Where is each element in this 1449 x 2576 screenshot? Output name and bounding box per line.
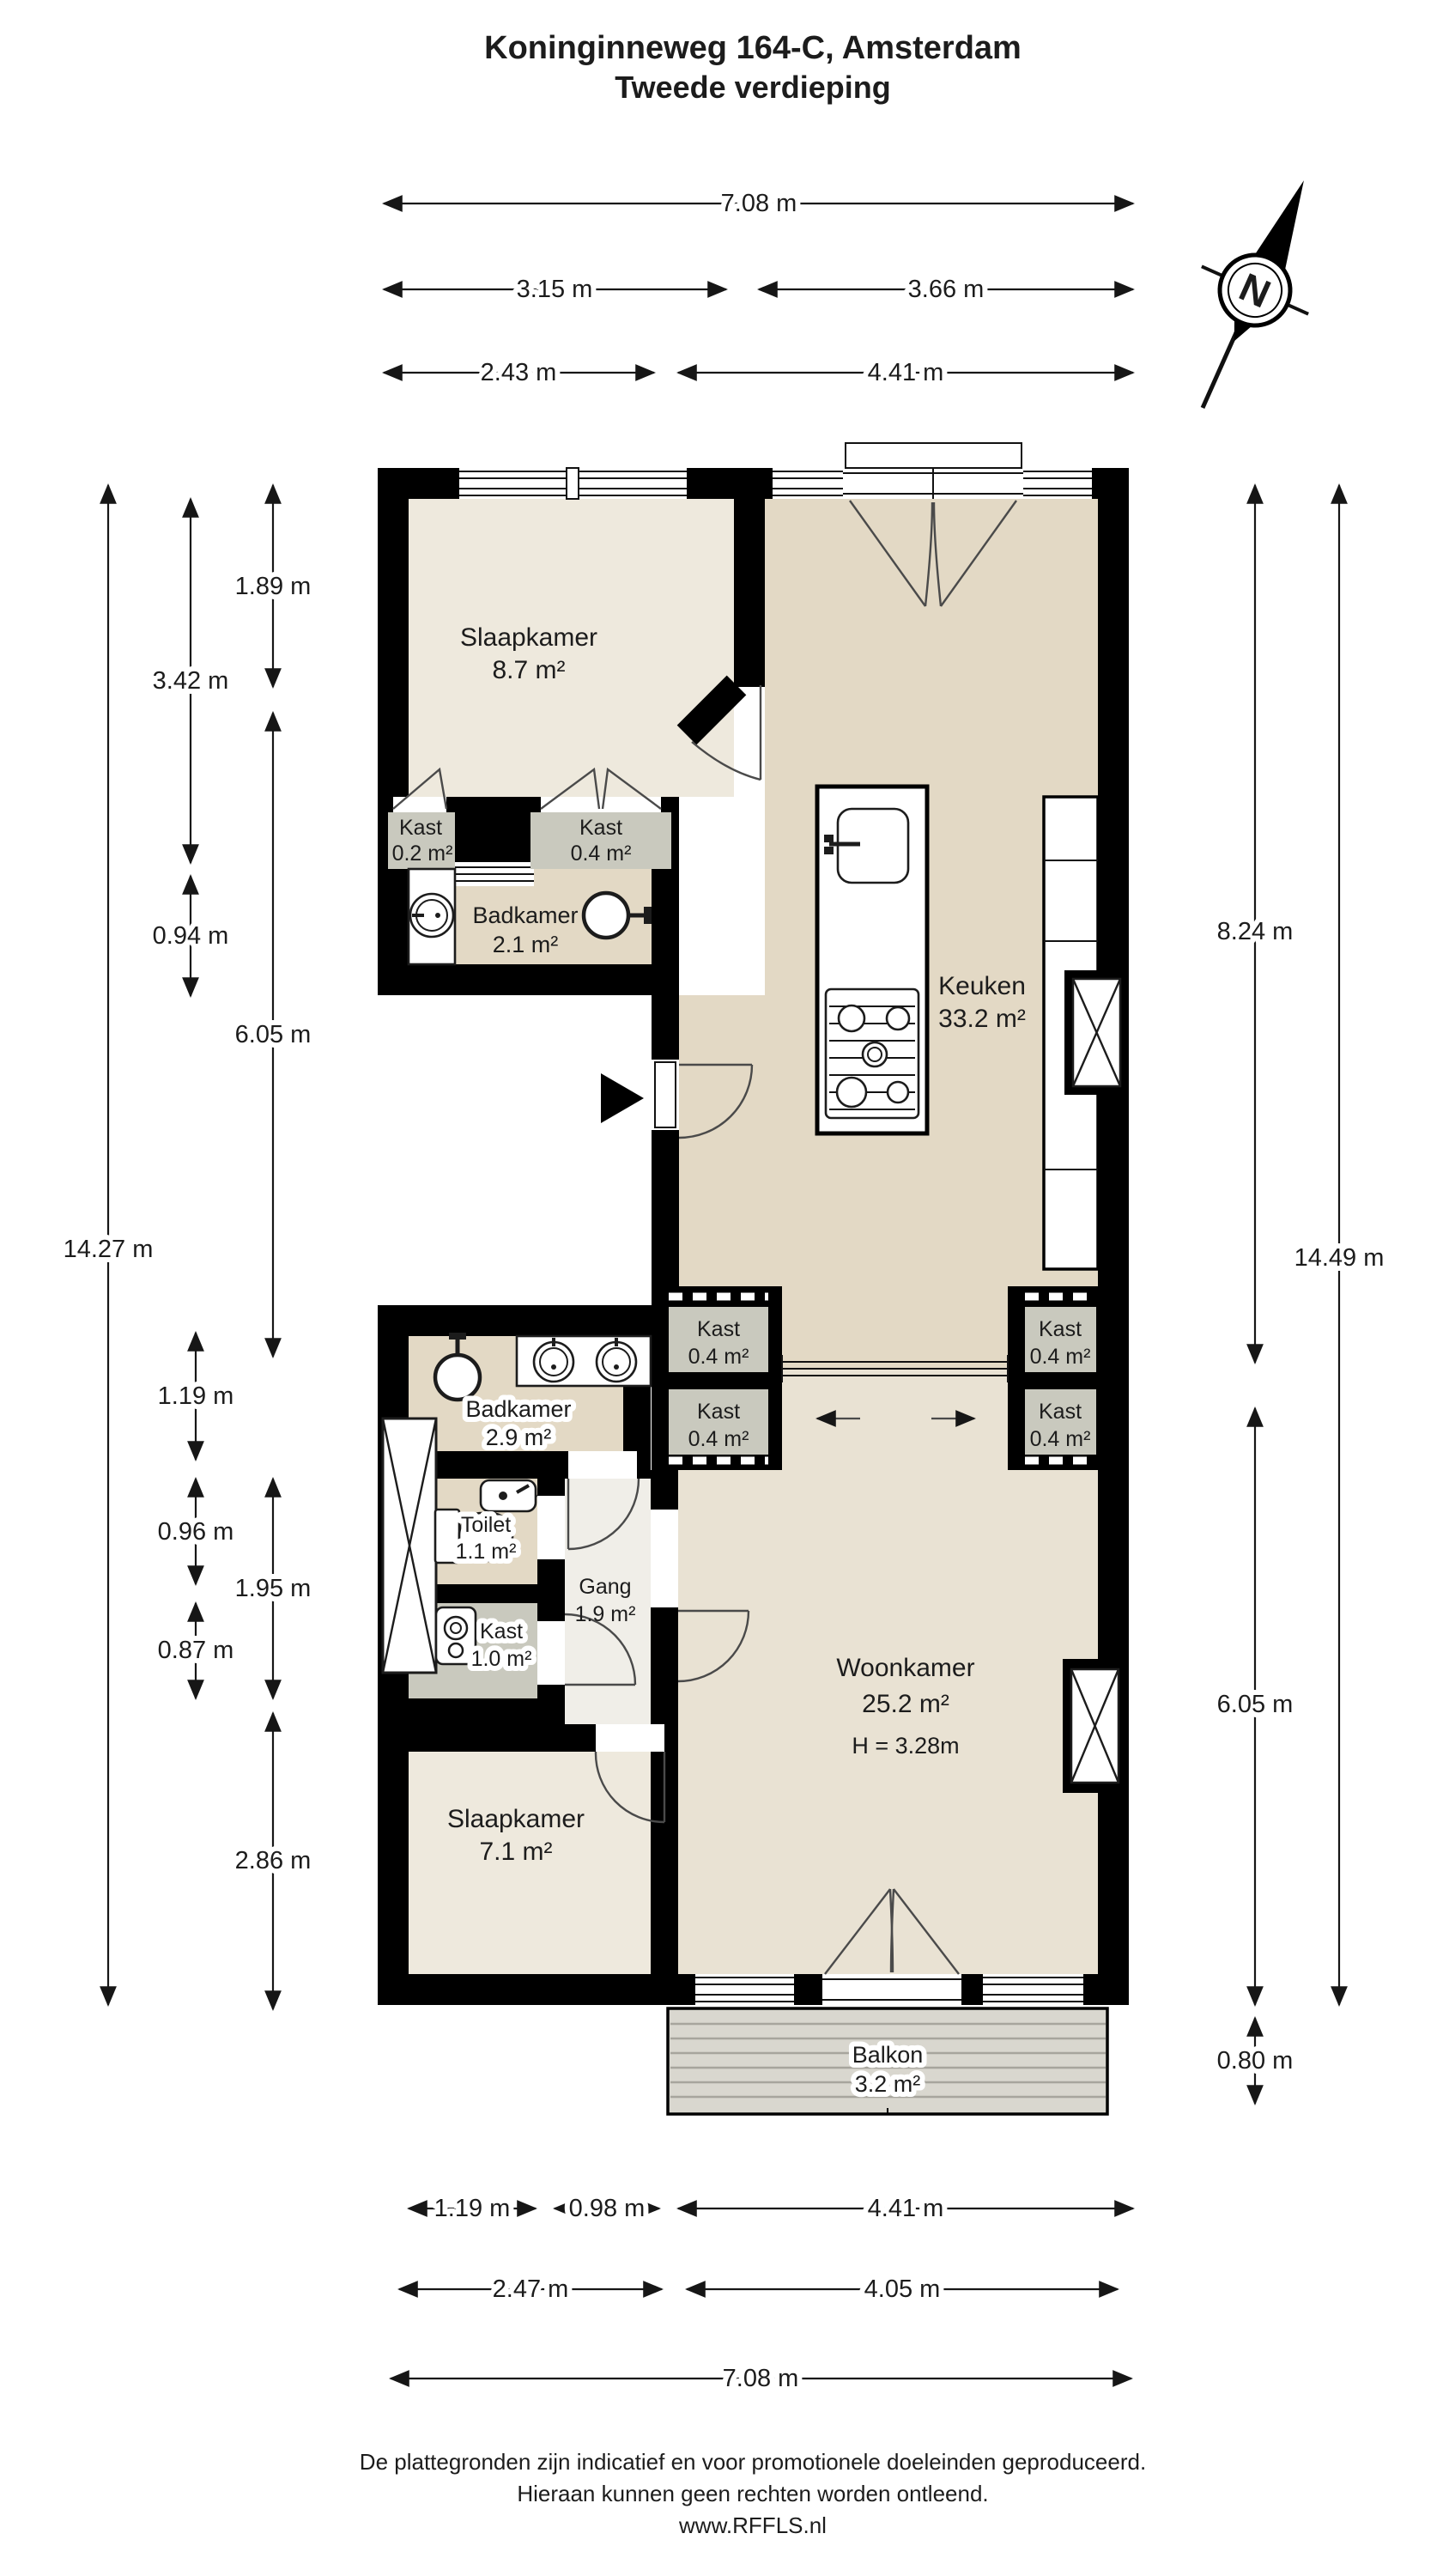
dimension-label: 0.96 m [158, 1518, 234, 1546]
dimension-label: 14.27 m [64, 1236, 154, 1263]
wall-segment [652, 995, 679, 1305]
dimension-label: 2.43 m [481, 359, 557, 386]
room-label: Keuken [938, 972, 1026, 1000]
compass-icon: N [1149, 156, 1357, 431]
window [983, 1974, 1083, 2005]
wall-segment [652, 869, 679, 995]
floor-gang [565, 1479, 651, 1724]
dimension-label: 6.05 m [1217, 1691, 1294, 1718]
footer-website: www.RFFLS.nl [678, 2512, 827, 2538]
kast-door-opening [541, 797, 661, 812]
room-label: Kast [399, 816, 442, 840]
dimension-label: 1.89 m [235, 573, 312, 600]
kast-door-opening [393, 797, 446, 812]
door-opening [568, 1451, 637, 1479]
room-area: 2.9 m² [486, 1425, 552, 1450]
room-label: Badkamer [472, 902, 578, 928]
footer-disclaimer-2: Hieraan kunnen geen rechten worden ontle… [517, 2481, 988, 2506]
dimension-label: 7.08 m [721, 190, 797, 217]
room-area: 3.2 m² [855, 2071, 921, 2097]
shower-icon [584, 893, 628, 938]
sink-drain [499, 1492, 507, 1500]
dimension-label: 7.08 m [723, 2365, 799, 2392]
room-label: Gang [579, 1575, 631, 1599]
room-label: Kast [480, 1619, 523, 1643]
window-mullion [567, 468, 579, 499]
room-floors [409, 499, 1098, 1974]
dimension-label: 3.66 m [908, 276, 985, 303]
dimension-label: 0.98 m [569, 2195, 646, 2222]
burner [863, 1042, 887, 1066]
floorplan-canvas: Koninginneweg 164-C, Amsterdam Tweede ve… [0, 0, 1449, 2576]
room-label: Badkamer [465, 1396, 571, 1422]
room-ceiling-height: H = 3.28m [852, 1733, 959, 1759]
room-area: 2.1 m² [493, 932, 559, 957]
dimension-label: 3.15 m [517, 276, 593, 303]
shower-mount [449, 1333, 466, 1340]
door-opening [651, 1510, 678, 1607]
dimension-label: 2.47 m [493, 2275, 569, 2303]
burner [839, 1005, 864, 1031]
dimension-label: 0.80 m [1217, 2047, 1294, 2075]
room-label: Kast [697, 1400, 740, 1424]
room-area: 25.2 m² [862, 1690, 949, 1718]
room-area: 0.4 m² [688, 1345, 749, 1369]
wall-segment [378, 468, 409, 995]
room-area: 0.4 m² [688, 1427, 749, 1451]
room-area: 0.4 m² [1030, 1427, 1091, 1451]
room-area: 33.2 m² [938, 1005, 1026, 1033]
dimension-label: 1.19 m [158, 1382, 234, 1410]
wall-segment [378, 964, 679, 995]
sink-drain [551, 1364, 556, 1370]
dimension-label: 4.41 m [868, 2195, 944, 2222]
dimension-label: 2.86 m [235, 1847, 312, 1874]
room-area: 0.4 m² [571, 841, 632, 866]
page-subtitle: Tweede verdieping [615, 70, 890, 105]
door-opening [537, 1621, 565, 1685]
room-label: Slaapkamer [447, 1805, 585, 1833]
burner [837, 1078, 866, 1107]
dimension-label: 1.95 m [235, 1575, 312, 1602]
room-area: 7.1 m² [479, 1838, 552, 1866]
shower-icon [435, 1355, 480, 1400]
kitchen-tap [824, 835, 834, 842]
floorplan-page: Koninginneweg 164-C, Amsterdam Tweede ve… [0, 0, 1449, 2576]
burner [888, 1082, 908, 1103]
room-area: 1.9 m² [575, 1602, 636, 1626]
window [695, 1974, 794, 2005]
room-label: Woonkamer [836, 1654, 974, 1682]
room-area: 0.2 m² [392, 841, 453, 866]
wall-segment [378, 1305, 652, 1336]
wall-segment [409, 1698, 565, 1724]
room-label: Balkon [852, 2042, 924, 2068]
sink-drain [435, 913, 440, 918]
room-label: Kast [1039, 1317, 1082, 1341]
door-opening [596, 1724, 664, 1752]
room-area: 0.4 m² [1030, 1345, 1091, 1369]
page-title: Koninginneweg 164-C, Amsterdam [484, 30, 1022, 66]
footer-disclaimer-1: De plattegronden zijn indicatief en voor… [360, 2449, 1146, 2475]
room-label: Slaapkamer [460, 623, 597, 652]
sink-drain [614, 1364, 619, 1370]
entrance-door-panel [655, 1062, 676, 1127]
room-area: 8.7 m² [492, 656, 565, 684]
door-opening [537, 1496, 565, 1559]
entrance-arrow-icon [601, 1073, 644, 1123]
room-area: 1.1 m² [456, 1540, 517, 1564]
french-balcony-rail [846, 443, 1022, 468]
footer: De plattegronden zijn indicatief en voor… [360, 2449, 1146, 2538]
shower-mount [644, 907, 652, 924]
dimension-label: 0.87 m [158, 1637, 234, 1664]
dimension-label: 1.19 m [434, 2195, 511, 2222]
window [773, 468, 843, 499]
room-label: Toilet [461, 1513, 511, 1537]
dimension-label: 14.49 m [1294, 1244, 1385, 1272]
dimension-label: 4.41 m [868, 359, 944, 386]
room-area: 1.0 m² [471, 1647, 532, 1671]
dimension-label: 0.94 m [153, 922, 229, 950]
window [1023, 468, 1092, 499]
kitchen-tap [824, 847, 834, 854]
dimension-label: 4.05 m [864, 2275, 941, 2303]
dimension-label: 8.24 m [1217, 918, 1294, 945]
dimension-label: 6.05 m [235, 1021, 312, 1048]
room-label: Kast [579, 816, 622, 840]
wall-segment [734, 499, 765, 687]
dimension-label: 3.42 m [153, 667, 229, 695]
burner [887, 1007, 909, 1030]
room-label: Kast [1039, 1400, 1082, 1424]
room-label: Kast [697, 1317, 740, 1341]
